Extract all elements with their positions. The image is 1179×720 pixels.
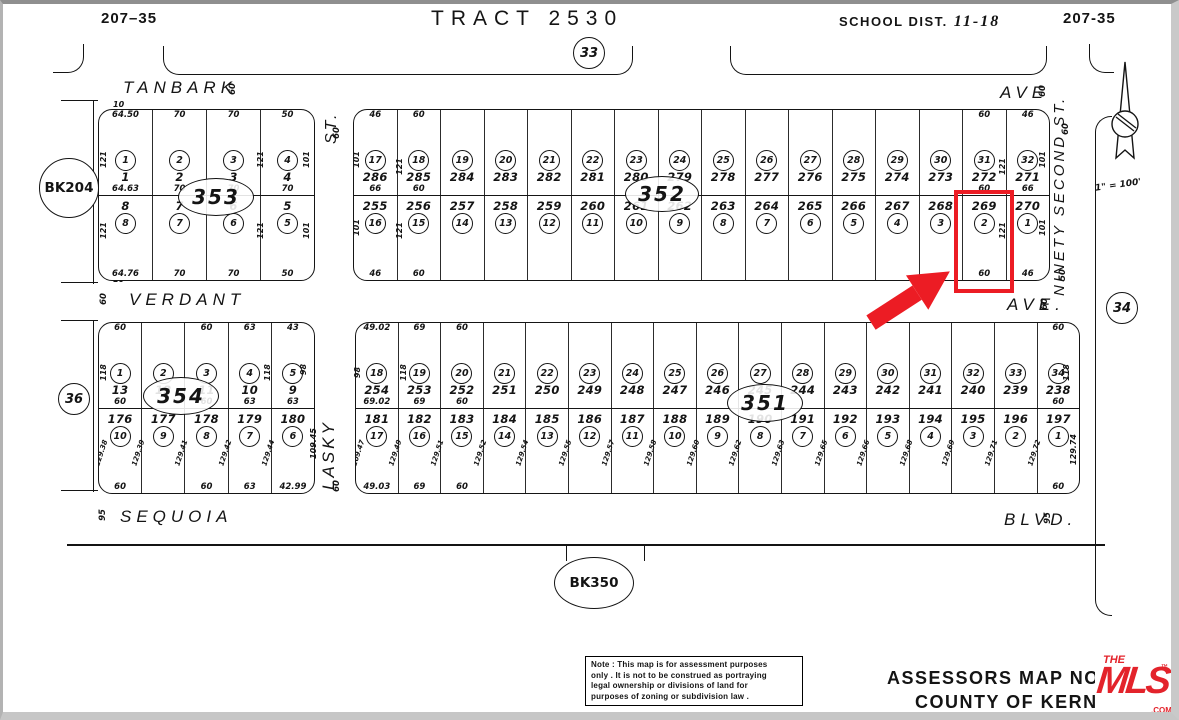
lot-cell-parcel-241: 31241 xyxy=(910,323,953,408)
parcel-number: 180 xyxy=(280,413,305,426)
lot-number-circle: 15 xyxy=(408,213,429,234)
ref-circle-bk204: BK204 xyxy=(39,158,99,218)
lot-number-circle: 8 xyxy=(713,213,734,234)
lot-cell-parcel-273: 30273 xyxy=(920,110,964,195)
block-outline-stub xyxy=(730,46,1047,75)
street-width-mark: 95 xyxy=(98,509,108,521)
lot-number-circle: 2 xyxy=(1005,426,1026,447)
lot-number-circle: 8 xyxy=(115,213,136,234)
parcel-number: 241 xyxy=(918,384,943,397)
street-ave-mid: AVE. xyxy=(1007,295,1065,315)
lot-cell-parcel-260: 26011 xyxy=(572,196,616,281)
lot-cell-parcel-257: 25714 xyxy=(441,196,485,281)
lot-cell-parcel-248: 24248 xyxy=(612,323,655,408)
lot-number-circle: 30 xyxy=(877,363,898,384)
dimension-label: 118 xyxy=(99,364,108,381)
parcel-number: 13 xyxy=(112,384,129,397)
highlight-arrow-icon xyxy=(861,256,961,330)
parcel-number: 263 xyxy=(711,200,736,213)
dimension-label: 101 xyxy=(352,219,361,236)
note-line: Note : This map is for assessment purpos… xyxy=(591,660,797,671)
lot-cell-parcel-249: 23249 xyxy=(569,323,612,408)
dimension-label: 42.99 xyxy=(279,482,306,493)
parcel-number: 5 xyxy=(283,200,291,213)
lot-number-circle: 1 xyxy=(115,150,136,171)
parcel-number: 176 xyxy=(108,413,133,426)
lot-number-circle: 22 xyxy=(582,150,603,171)
street-width-mark: 60 xyxy=(1038,85,1048,97)
parcel-number: 265 xyxy=(798,200,823,213)
street-width-mark: 60 xyxy=(332,480,342,492)
dimension-label: 63 xyxy=(287,397,299,408)
block-351: 49.021825469.026919253696020252602125122… xyxy=(355,322,1080,494)
lot-number-circle: 1 xyxy=(1017,213,1038,234)
block-outline-stub xyxy=(53,44,84,73)
county-title: COUNTY OF KERN xyxy=(915,692,1098,713)
dimension-label: 60 xyxy=(201,482,213,493)
parcel-number: 260 xyxy=(580,200,605,213)
lot-number-circle: 2 xyxy=(169,150,190,171)
parcel-number: 238 xyxy=(1046,384,1071,397)
dimension-label: 10 xyxy=(113,100,124,109)
block-label-351: 351 xyxy=(727,384,803,422)
lot-number-circle: 5 xyxy=(843,213,864,234)
street-verdant: VERDANT xyxy=(129,290,245,310)
lot-cell-parcel-259: 25912 xyxy=(528,196,572,281)
block-label-352: 352 xyxy=(625,176,699,212)
highlight-box-parcel-269 xyxy=(954,190,1014,293)
lot-number-circle: 6 xyxy=(800,213,821,234)
lot-number-circle: 6 xyxy=(282,426,303,447)
lot-cell-parcel-251: 21251 xyxy=(484,323,527,408)
parcel-number: 248 xyxy=(620,384,645,397)
street-width-mark: 60 xyxy=(1061,123,1071,135)
ref-circle-33: 33 xyxy=(573,37,605,69)
lot-number-circle: 31 xyxy=(974,150,995,171)
parcel-number: 276 xyxy=(798,171,823,184)
parcel-number: 259 xyxy=(537,200,562,213)
dimension-label: 109.47 xyxy=(355,439,366,467)
parcel-number: 271 xyxy=(1015,171,1040,184)
street-edge-line xyxy=(67,544,1105,546)
parcel-number: 254 xyxy=(364,384,389,397)
ref-circle-34: 34 xyxy=(1106,292,1138,324)
assessment-note-box: Note : This map is for assessment purpos… xyxy=(585,656,803,706)
dimension-label: 101 xyxy=(352,151,361,168)
parcel-number: 194 xyxy=(918,413,943,426)
lot-number-circle: 28 xyxy=(792,363,813,384)
lot-number-circle: 10 xyxy=(664,426,685,447)
street-width-mark: 60 xyxy=(332,127,342,139)
dimension-label: 101 xyxy=(301,151,310,168)
dimension-label: 60 xyxy=(114,397,126,408)
lot-number-circle: 20 xyxy=(495,150,516,171)
street-blvd: BLVD. xyxy=(1004,510,1077,530)
map-canvas: 207–35 TRACT 2530 SCHOOL DIST.11-18 207-… xyxy=(3,4,1171,712)
dimension-label: 129.74 xyxy=(1069,434,1078,465)
parcel-number: 243 xyxy=(833,384,858,397)
dimension-label: 60 xyxy=(413,184,425,195)
lot-cell-parcel-274: 29274 xyxy=(876,110,920,195)
dimension-label: 118 xyxy=(399,364,408,381)
lot-number-circle: 23 xyxy=(579,363,600,384)
lot-number-circle: 10 xyxy=(626,213,647,234)
parcel-number: 251 xyxy=(492,384,517,397)
lot-number-circle: 1 xyxy=(1048,426,1069,447)
lot-number-circle: 3 xyxy=(223,150,244,171)
lot-number-circle: 28 xyxy=(843,150,864,171)
lot-cell-parcel-278: 25278 xyxy=(702,110,746,195)
lot-number-circle: 19 xyxy=(452,150,473,171)
lot-number-circle: 7 xyxy=(239,426,260,447)
parcel-number: 9 xyxy=(289,384,297,397)
lot-number-circle: 25 xyxy=(713,150,734,171)
parcel-number: 185 xyxy=(535,413,560,426)
north-arrow-icon xyxy=(1103,60,1147,182)
lot-number-circle: 12 xyxy=(579,426,600,447)
dimension-label: 60 xyxy=(413,269,425,280)
lot-number-circle: 12 xyxy=(539,213,560,234)
dimension-label: 121 xyxy=(256,151,265,168)
lot-number-circle: 25 xyxy=(664,363,685,384)
dimension-label: 121 xyxy=(998,158,1007,175)
parcel-number: 242 xyxy=(875,384,900,397)
parcel-number: 196 xyxy=(1003,413,1028,426)
lot-number-circle: 1 xyxy=(110,363,131,384)
dimension-label: 63 xyxy=(244,323,256,334)
lot-number-circle: 8 xyxy=(750,426,771,447)
dimension-label: 118 xyxy=(1062,364,1071,381)
parcel-number: 285 xyxy=(406,171,431,184)
lot-number-circle: 4 xyxy=(920,426,941,447)
parcel-number: 186 xyxy=(577,413,602,426)
lot-cell-parcel-282: 21282 xyxy=(528,110,572,195)
school-district: SCHOOL DIST.11-18 xyxy=(839,13,1000,31)
lot-number-circle: 4 xyxy=(239,363,260,384)
lot-number-circle: 27 xyxy=(800,150,821,171)
lot-number-circle: 6 xyxy=(223,213,244,234)
lot-cell-parcel-263: 2638 xyxy=(702,196,746,281)
dimension-label: 60 xyxy=(201,323,213,334)
logo-com-text: .COM xyxy=(1151,706,1172,715)
parcel-number: 253 xyxy=(407,384,432,397)
page-number-right: 207-35 xyxy=(1063,10,1116,27)
parcel-number: 178 xyxy=(194,413,219,426)
dimension-label: 129.38 xyxy=(98,439,109,467)
block-outline-stub xyxy=(163,46,633,75)
parcel-number: 278 xyxy=(711,171,736,184)
parcel-number: 183 xyxy=(450,413,475,426)
lot-cell-parcel-240: 32240 xyxy=(952,323,995,408)
parcel-number: 184 xyxy=(492,413,517,426)
dimension-label: 69 xyxy=(413,482,425,493)
dimension-label: 101 xyxy=(1038,219,1047,236)
dimension-label: 98 xyxy=(299,364,308,375)
dimension-label: 121 xyxy=(99,223,108,240)
street-width-mark: 60 xyxy=(228,83,238,95)
lot-cell-parcel-256: 2561560 xyxy=(398,196,442,281)
lot-cell-parcel-250: 22250 xyxy=(526,323,569,408)
lot-number-circle: 17 xyxy=(365,150,386,171)
street-width-mark: 50 xyxy=(1058,269,1068,281)
lot-number-circle: 8 xyxy=(196,426,217,447)
lot-number-circle: 5 xyxy=(277,213,298,234)
dimension-label: 101 xyxy=(301,223,310,240)
lot-cell-parcel-277: 26277 xyxy=(746,110,790,195)
lot-cell-parcel-242: 30242 xyxy=(867,323,910,408)
lot-number-circle: 9 xyxy=(153,426,174,447)
street-width-mark: 60 xyxy=(1040,298,1050,310)
lot-number-circle: 19 xyxy=(409,363,430,384)
lot-number-circle: 21 xyxy=(494,363,515,384)
parcel-number: 250 xyxy=(535,384,560,397)
block-label-354: 354 xyxy=(143,377,219,415)
dimension-label: 70 xyxy=(282,184,294,195)
parcel-number: 258 xyxy=(493,200,518,213)
lot-cell-parcel-284: 19284 xyxy=(441,110,485,195)
street-tanbark: TANBARK xyxy=(123,78,237,98)
lot-cell-parcel-258: 25813 xyxy=(485,196,529,281)
parcel-number: 275 xyxy=(841,171,866,184)
parcel-number: 197 xyxy=(1046,413,1071,426)
school-district-label: SCHOOL DIST. xyxy=(839,14,948,29)
parcel-number: 255 xyxy=(363,200,388,213)
lot-cell-parcel-272: 603127260 xyxy=(963,110,1007,195)
parcel-number: 274 xyxy=(885,171,910,184)
block-353: 64.501164.637022707033705044708864.76777… xyxy=(98,109,315,281)
parcel-number: 179 xyxy=(237,413,262,426)
logo-trademark: ™ xyxy=(1161,664,1168,671)
lot-number-circle: 27 xyxy=(750,363,771,384)
parcel-number: 239 xyxy=(1003,384,1028,397)
assessor-map-page: 207–35 TRACT 2530 SCHOOL DIST.11-18 207-… xyxy=(0,0,1179,720)
dimension-label: 70 xyxy=(174,269,186,280)
parcel-number: 192 xyxy=(833,413,858,426)
dimension-label: 60 xyxy=(413,110,425,121)
parcel-number: 270 xyxy=(1015,200,1040,213)
street-edge-tick xyxy=(566,545,567,561)
lot-number-circle: 16 xyxy=(409,426,430,447)
dimension-label: 63 xyxy=(244,482,256,493)
lot-number-circle: 11 xyxy=(582,213,603,234)
parcel-number: 193 xyxy=(875,413,900,426)
parcel-number: 182 xyxy=(407,413,432,426)
lot-number-circle: 30 xyxy=(930,150,951,171)
lot-number-circle: 20 xyxy=(451,363,472,384)
lot-number-circle: 31 xyxy=(920,363,941,384)
dimension-label: 49.02 xyxy=(363,323,390,334)
parcel-number: 189 xyxy=(705,413,730,426)
dimension-label: 46 xyxy=(1022,110,1034,121)
lot-number-circle: 18 xyxy=(408,150,429,171)
lot-number-circle: 4 xyxy=(887,213,908,234)
dimension-label: 60 xyxy=(978,110,990,121)
parcel-number: 252 xyxy=(450,384,475,397)
dimension-label: 64.76 xyxy=(112,269,139,280)
lot-number-circle: 16 xyxy=(365,213,386,234)
lot-cell-parcel-275: 28275 xyxy=(833,110,877,195)
the-mls-logo: THE MLS ™ .COM xyxy=(1095,652,1177,720)
parcel-number: 283 xyxy=(493,171,518,184)
lot-number-circle: 15 xyxy=(451,426,472,447)
dimension-label: 64.63 xyxy=(112,184,139,195)
lot-number-circle: 24 xyxy=(669,150,690,171)
parcel-number: 187 xyxy=(620,413,645,426)
parcel-number: 181 xyxy=(364,413,389,426)
note-line: legal ownership or divisions of land for xyxy=(591,681,797,692)
dimension-label: 50 xyxy=(282,110,294,121)
ref-circle-36: 36 xyxy=(58,383,90,415)
lot-number-circle: 22 xyxy=(537,363,558,384)
lot-number-circle: 13 xyxy=(537,426,558,447)
parcel-number: 268 xyxy=(928,200,953,213)
lot-cell-parcel-254: 49.021825469.02 xyxy=(356,323,399,408)
lot-number-circle: 4 xyxy=(277,150,298,171)
street-edge-tick xyxy=(644,545,645,561)
dimension-label: 109.45 xyxy=(308,428,317,459)
dimension-label: 70 xyxy=(174,110,186,121)
dimension-label: 64.50 xyxy=(112,110,139,121)
parcel-number: 284 xyxy=(450,171,475,184)
lot-number-circle: 5 xyxy=(877,426,898,447)
parcel-number: 273 xyxy=(928,171,953,184)
lot-cell-parcel-265: 2656 xyxy=(789,196,833,281)
lot-cell-parcel-180: 180642.99129.44 xyxy=(272,409,314,494)
parcel-number: 188 xyxy=(663,413,688,426)
lot-number-circle: 3 xyxy=(963,426,984,447)
note-line: purposes of zoning or subdivision law . xyxy=(591,692,797,703)
dimension-label: 60 xyxy=(114,323,126,334)
lot-number-circle: 26 xyxy=(707,363,728,384)
dimension-label: 46 xyxy=(369,269,381,280)
dimension-label: 66 xyxy=(369,184,381,195)
dimension-label: 60 xyxy=(456,397,468,408)
lot-number-circle: 7 xyxy=(792,426,813,447)
lot-cell-parcel-283: 20283 xyxy=(485,110,529,195)
note-line: only . It is not to be construed as port… xyxy=(591,671,797,682)
parcel-number: 266 xyxy=(841,200,866,213)
dimension-label: 60 xyxy=(1052,323,1064,334)
dimension-label: 43 xyxy=(287,323,299,334)
dimension-label: 63 xyxy=(244,397,256,408)
dimension-label: 118 xyxy=(263,364,272,381)
street-width-mark: 95 xyxy=(1043,512,1053,524)
street-width-mark: 60 xyxy=(99,293,109,305)
parcel-number: 195 xyxy=(961,413,986,426)
lot-number-circle: 7 xyxy=(169,213,190,234)
parcel-number: 8 xyxy=(121,200,129,213)
dimension-label: 69.02 xyxy=(363,397,390,408)
dimension-label: 121 xyxy=(395,158,404,175)
dimension-label: 60 xyxy=(456,323,468,334)
lot-number-circle: 17 xyxy=(366,426,387,447)
block-row: 49.021825469.026919253696020252602125122… xyxy=(356,323,1079,409)
lot-cell-parcel-252: 602025260 xyxy=(441,323,484,408)
lot-number-circle: 7 xyxy=(756,213,777,234)
dimension-label: 121 xyxy=(256,223,265,240)
lot-number-circle: 18 xyxy=(366,363,387,384)
dimension-label: 121 xyxy=(395,223,404,240)
tract-title: TRACT 2530 xyxy=(431,7,623,31)
block-label-353: 353 xyxy=(178,178,254,216)
dimension-label: 70 xyxy=(228,110,240,121)
parcel-number: 240 xyxy=(961,384,986,397)
block-354: 6011360212603116063410634359631761060129… xyxy=(98,322,315,494)
lot-number-circle: 26 xyxy=(756,150,777,171)
dimension-label: 66 xyxy=(1022,184,1034,195)
parcel-number: 256 xyxy=(406,200,431,213)
lot-number-circle: 23 xyxy=(626,150,647,171)
lot-number-circle: 32 xyxy=(963,363,984,384)
lot-cell-parcel-247: 25247 xyxy=(654,323,697,408)
parcel-number: 1 xyxy=(121,171,129,184)
lot-cell-parcel-264: 2647 xyxy=(746,196,790,281)
lot-number-circle: 6 xyxy=(835,426,856,447)
parcel-number: 257 xyxy=(450,200,475,213)
dimension-label: 69 xyxy=(413,323,425,334)
block-row: 4617286666018285601928420283212822228123… xyxy=(354,110,1049,196)
street-lasky: LASKY xyxy=(319,394,339,490)
parcel-number: 249 xyxy=(577,384,602,397)
dimension-label: 60 xyxy=(1052,397,1064,408)
parcel-number: 277 xyxy=(754,171,779,184)
lot-number-circle: 29 xyxy=(887,150,908,171)
dimension-label: 46 xyxy=(369,110,381,121)
lot-number-circle: 9 xyxy=(669,213,690,234)
lot-cell-parcel-238: 603423860 xyxy=(1038,323,1080,408)
lot-number-circle: 33 xyxy=(1005,363,1026,384)
parcel-number: 10 xyxy=(241,384,258,397)
parcel-number: 282 xyxy=(537,171,562,184)
street-sequoia: SEQUOIA xyxy=(120,507,232,527)
page-number-left: 207–35 xyxy=(101,10,157,27)
dimension-label: 60 xyxy=(1052,482,1064,493)
lot-number-circle: 32 xyxy=(1017,150,1038,171)
parcel-number: 272 xyxy=(972,171,997,184)
lot-number-circle: 21 xyxy=(539,150,560,171)
lot-number-circle: 14 xyxy=(494,426,515,447)
lot-number-circle: 13 xyxy=(495,213,516,234)
dimension-label: 69 xyxy=(413,397,425,408)
dimension-label: 101 xyxy=(1038,151,1047,168)
dimension-label: 50 xyxy=(282,269,294,280)
lot-cell-parcel-281: 22281 xyxy=(572,110,616,195)
lot-cell-parcel-276: 27276 xyxy=(789,110,833,195)
parcel-number: 286 xyxy=(363,171,388,184)
parcel-number: 2 xyxy=(175,171,183,184)
lot-number-circle: 10 xyxy=(110,426,131,447)
dimension-label: 121 xyxy=(99,151,108,168)
block-row: 1811749.03109.471821669129.491831560129.… xyxy=(356,409,1079,494)
block-row: 1761060129.381779129.39178860129.4117976… xyxy=(99,409,314,494)
lot-number-circle: 9 xyxy=(707,426,728,447)
lot-cell-parcel-239: 33239 xyxy=(995,323,1038,408)
parcel-number: 267 xyxy=(885,200,910,213)
dimension-label: 70 xyxy=(228,269,240,280)
dimension-label: 46 xyxy=(1022,269,1034,280)
dimension-label: 60 xyxy=(456,482,468,493)
lot-cell-parcel-285: 601828560 xyxy=(398,110,442,195)
dimension-label: 60 xyxy=(114,482,126,493)
lot-number-circle: 24 xyxy=(622,363,643,384)
parcel-number: 4 xyxy=(283,171,291,184)
lot-cell-parcel-243: 29243 xyxy=(825,323,868,408)
lot-cell-parcel-255: 2551646 xyxy=(354,196,398,281)
lot-number-circle: 11 xyxy=(622,426,643,447)
street-edge-line xyxy=(93,320,94,492)
parcel-number: 264 xyxy=(754,200,779,213)
parcel-number: 246 xyxy=(705,384,730,397)
